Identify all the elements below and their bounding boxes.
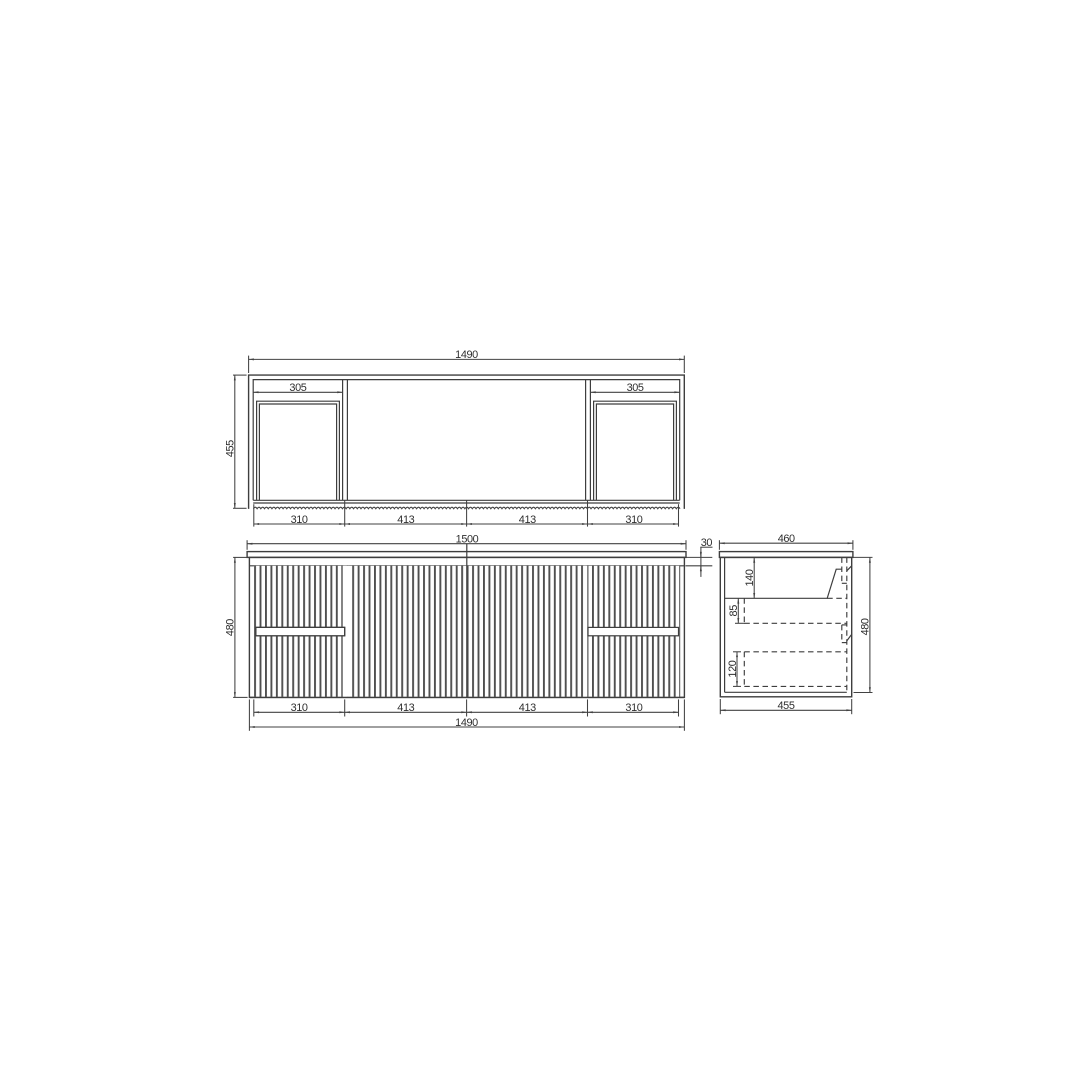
svg-text:30: 30	[701, 537, 713, 549]
svg-text:310: 310	[625, 514, 642, 526]
svg-text:455: 455	[778, 700, 795, 712]
svg-text:120: 120	[727, 660, 739, 677]
svg-text:413: 413	[519, 702, 536, 714]
svg-text:413: 413	[397, 514, 414, 526]
svg-text:413: 413	[397, 702, 414, 714]
svg-text:85: 85	[728, 605, 740, 617]
svg-text:413: 413	[519, 514, 536, 526]
svg-text:305: 305	[627, 382, 644, 394]
svg-text:310: 310	[291, 702, 308, 714]
svg-text:140: 140	[744, 569, 756, 586]
svg-text:310: 310	[291, 514, 308, 526]
svg-text:305: 305	[289, 382, 306, 394]
svg-text:1490: 1490	[455, 717, 478, 729]
svg-text:1500: 1500	[456, 534, 479, 546]
svg-text:1490: 1490	[455, 349, 478, 361]
svg-text:480: 480	[225, 619, 237, 636]
svg-text:480: 480	[860, 618, 872, 635]
svg-text:455: 455	[224, 440, 236, 457]
svg-text:460: 460	[778, 533, 795, 545]
svg-text:310: 310	[625, 702, 642, 714]
